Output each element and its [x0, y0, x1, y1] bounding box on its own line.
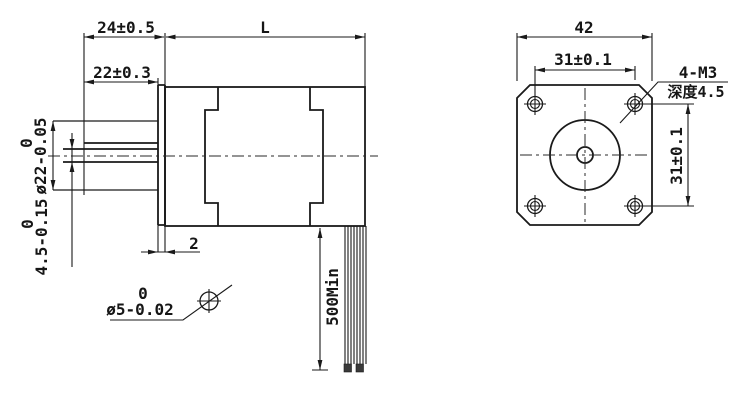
drawing-canvas: 24±0.5 L 22±0.3 0 ø22-0.05 0 4.5-0.15 0 …: [0, 0, 743, 404]
mounting-hole: [624, 195, 646, 217]
side-view: 24±0.5 L 22±0.3 0 ø22-0.05 0 4.5-0.15 0 …: [17, 18, 378, 372]
wire-tip: [344, 364, 352, 372]
dim-hole-spacing-side-label: 31±0.1: [667, 127, 686, 185]
mounting-hole: [524, 93, 546, 115]
thread-depth-label: 深度4.5: [667, 83, 724, 101]
thread-spec-label: 4-M3: [679, 63, 718, 82]
front-view-dimension-lines: [517, 33, 728, 206]
mounting-hole: [524, 195, 546, 217]
front-view: 42 31±0.1 4-M3 深度4.5 31±0.1: [517, 18, 728, 225]
wire-length-value: 500Min: [323, 268, 342, 326]
lead-wires: [344, 226, 366, 372]
dim-wire-length-label: 500Min: [323, 268, 342, 326]
dim-shaft-diameter-label: ø5-0.02: [106, 300, 173, 319]
dim-body-length-label: L: [260, 18, 270, 37]
flat-value: 4.5-0.15: [32, 198, 51, 275]
front-view-centerlines: [520, 88, 649, 222]
dim-flange-width-label: 42: [574, 18, 593, 37]
wire-tip: [356, 364, 364, 372]
mounting-hole: [624, 93, 646, 115]
flange-plate: [158, 33, 165, 252]
dim-flange-thickness-label: 2: [189, 234, 199, 253]
shaft-and-boss: [53, 33, 158, 195]
dim-boss-diameter-label: 0 ø22-0.05: [17, 117, 50, 194]
engineering-drawing: 24±0.5 L 22±0.3 0 ø22-0.05 0 4.5-0.15 0 …: [0, 0, 743, 404]
hole-spacing-side-value: 31±0.1: [667, 127, 686, 185]
boss-dia-value: ø22-0.05: [31, 117, 50, 194]
dim-hole-spacing-top-label: 31±0.1: [554, 50, 612, 69]
dim-shaft-front-label: 22±0.3: [93, 63, 151, 82]
dim-shaft-total-label: 24±0.5: [97, 18, 155, 37]
dim-shaft-flat-label: 0 4.5-0.15: [18, 198, 51, 275]
side-view-dimension-lines: [51, 33, 365, 370]
